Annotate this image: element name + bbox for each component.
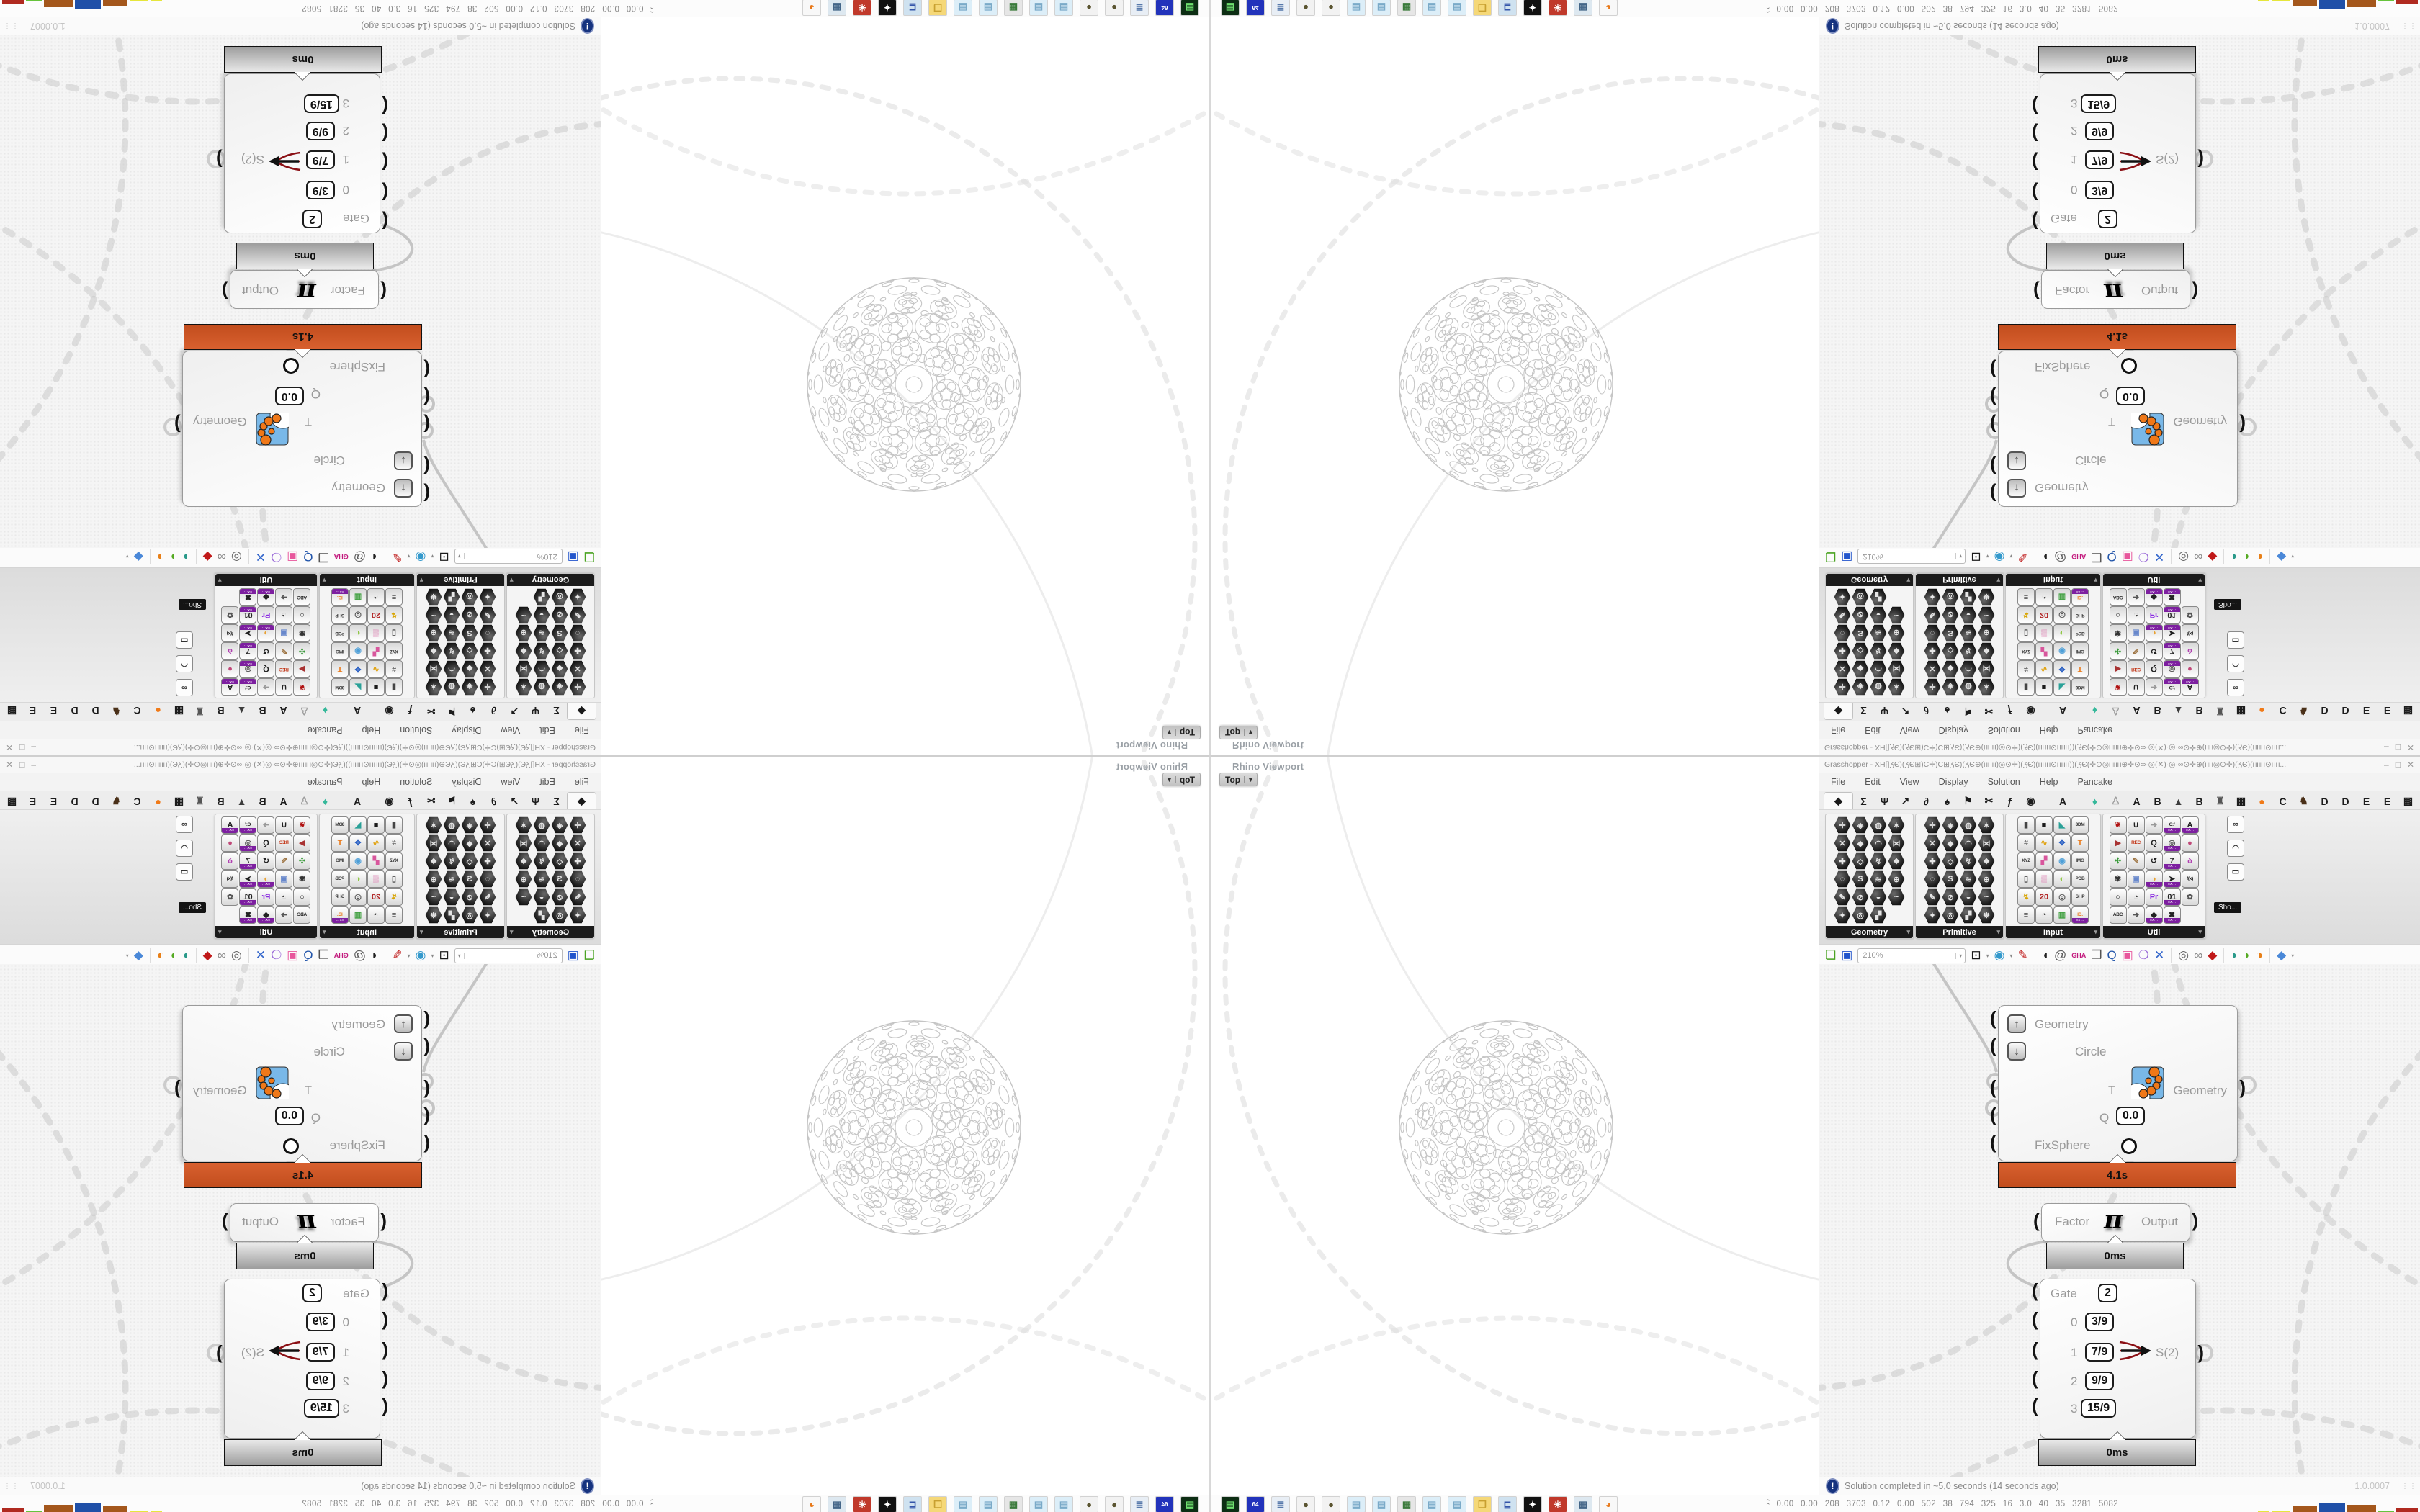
maximize-button[interactable]: □ xyxy=(2396,760,2401,769)
input-connector[interactable]: ( xyxy=(382,215,388,228)
component-icon[interactable]: ◒ xyxy=(1960,888,1977,906)
component-icon[interactable]: ◇ xyxy=(551,852,568,870)
category-tab[interactable]: ▲ xyxy=(231,703,252,719)
component-icon[interactable]: A≡x… xyxy=(222,816,239,834)
component-icon[interactable]: ∞ xyxy=(2227,816,2244,833)
promote-up-button[interactable]: ↑ xyxy=(2007,1014,2026,1033)
component-icon[interactable]: ➤≡x… xyxy=(2164,624,2181,642)
component-icon[interactable]: ✚ xyxy=(569,642,586,660)
component-icon[interactable]: ◐ xyxy=(349,624,367,642)
component-icon[interactable]: ◍ xyxy=(443,816,460,834)
component-icon[interactable]: ✎ xyxy=(569,606,586,624)
taskbar-app-icon[interactable]: ⊑ xyxy=(1498,0,1517,17)
taskbar-app-icon[interactable]: ▤ xyxy=(1029,1496,1048,1512)
output-connector[interactable]: ) xyxy=(222,1214,228,1227)
category-tab[interactable]: ƒ xyxy=(400,703,421,719)
chevron-down-icon[interactable]: ▼ xyxy=(1166,776,1176,783)
component-icon[interactable]: XYZ xyxy=(2017,642,2035,660)
component-icon[interactable]: ∞ xyxy=(176,816,193,833)
finder-icon[interactable]: Q xyxy=(303,948,313,963)
component-icon[interactable]: ↯ xyxy=(2017,606,2035,624)
component-icon[interactable]: ○ xyxy=(294,888,311,906)
category-tab[interactable]: D xyxy=(2335,793,2356,809)
component-icon[interactable]: ◐ xyxy=(349,870,367,888)
component-icon[interactable]: REC xyxy=(276,834,293,852)
category-tab[interactable]: ◆ xyxy=(1824,703,1853,720)
input-connector[interactable]: ( xyxy=(1990,460,1996,473)
component-icon[interactable]: XYZ xyxy=(2017,852,2035,870)
component-icon[interactable]: ❉ xyxy=(425,588,442,606)
preview-eye-icon[interactable]: ◉ xyxy=(416,948,426,963)
component-icon[interactable]: ✎ xyxy=(1924,606,1941,624)
palette-group-label[interactable]: Primitive▾ xyxy=(1916,926,2003,938)
chevron-down-icon[interactable]: ▾ xyxy=(126,554,129,560)
component-icon[interactable]: ⋈ xyxy=(425,660,442,678)
gh-canvas[interactable]: ( ( ( ( ( ) ↑ Geometry ↓ Circle T xyxy=(0,964,601,1477)
input-connector[interactable]: ( xyxy=(382,1313,388,1326)
component-icon[interactable]: REC xyxy=(2128,660,2145,678)
component-icon[interactable]: f(x) xyxy=(2182,624,2199,642)
rhino-viewport[interactable]: Rhino Viewport Top ▼ xyxy=(601,17,1209,755)
component-icon[interactable]: ∿ xyxy=(2035,660,2053,678)
taskbar-app-icon[interactable]: ✦ xyxy=(878,0,897,17)
chevron-down-icon[interactable]: ▼ xyxy=(1244,729,1254,737)
component-icon[interactable]: ↯ xyxy=(385,606,403,624)
category-tab[interactable]: ∂ xyxy=(1916,793,1937,809)
component-icon[interactable]: ▥ xyxy=(2053,588,2071,606)
gem-icon[interactable]: ◆ xyxy=(2208,549,2217,564)
at-badge-icon[interactable]: @ xyxy=(2054,549,2066,564)
menu-item-pancake[interactable]: Pancake xyxy=(308,777,343,787)
input-connector[interactable]: ( xyxy=(2032,1372,2038,1385)
chevron-down-icon[interactable]: ▾ xyxy=(218,576,222,584)
component-icon[interactable]: S xyxy=(1852,624,1869,642)
frame-extents-icon[interactable]: ⊡ xyxy=(439,948,449,963)
promote-up-button[interactable]: ↑ xyxy=(394,479,413,498)
component-icon[interactable]: IMG xyxy=(2071,852,2089,870)
component-icon[interactable]: ↯ xyxy=(533,852,550,870)
zoom-level-field[interactable]: 210%▾ xyxy=(454,948,563,963)
component-icon[interactable]: ≡ xyxy=(2017,906,2035,924)
titlebar[interactable]: Grasshopper - XH[]ƷЄ)(ƷЄ⊞)C✛)C⊞ƷЄ)(ƷЄ⊕(ʜ… xyxy=(0,757,601,773)
component-icon[interactable]: ✾ xyxy=(294,624,311,642)
component-icon[interactable]: ✚ xyxy=(1924,642,1941,660)
category-tab[interactable]: ◆ xyxy=(1824,792,1853,809)
category-tab[interactable]: A xyxy=(2041,703,2084,719)
open-file-icon[interactable]: ❏ xyxy=(584,549,595,564)
component-icon[interactable]: A≡x… xyxy=(222,678,239,696)
component-icon[interactable]: ✚ xyxy=(479,642,496,660)
component-icon[interactable]: ↯ xyxy=(1960,852,1977,870)
component-icon[interactable]: ▮ xyxy=(385,678,403,696)
component-icon[interactable]: ✕ xyxy=(1924,834,1941,852)
megaphone-icon[interactable]: ◖ xyxy=(371,948,378,963)
component-icon[interactable]: ➔ xyxy=(276,588,293,606)
category-tab[interactable]: ▲ xyxy=(2168,703,2189,719)
taskbar-app-icon[interactable]: ◕ xyxy=(1599,1496,1618,1512)
chevron-down-icon[interactable]: ▾ xyxy=(408,953,411,959)
component-icon[interactable]: REC xyxy=(276,660,293,678)
component-icon[interactable]: ~ xyxy=(515,606,532,624)
component-icon[interactable]: ✕ xyxy=(1834,660,1851,678)
package-icon[interactable]: ▣ xyxy=(287,549,298,564)
titlebar[interactable]: Grasshopper - XH[]ƷЄ)(ƷЄ⊞)C✛)C⊞ƷЄ)(ƷЄ⊕(ʜ… xyxy=(1819,739,2420,755)
finder-icon[interactable]: Q xyxy=(2107,549,2116,564)
output-connector[interactable]: ) xyxy=(2192,1214,2198,1227)
category-tab[interactable]: ƒ xyxy=(1999,703,2020,719)
rings-icon[interactable]: ∞ xyxy=(2194,549,2202,564)
component-icon[interactable]: ✦ xyxy=(569,588,586,606)
component-icon[interactable]: ✿ xyxy=(2182,888,2199,906)
component-icon[interactable]: ↯ xyxy=(2017,888,2035,906)
package-icon[interactable]: ▣ xyxy=(287,948,298,963)
taskbar-app-icon[interactable]: ▤ xyxy=(1448,1496,1466,1512)
taskbar-app-icon[interactable]: 64 xyxy=(1246,1496,1265,1512)
component-icon[interactable]: ➤≡x… xyxy=(2164,870,2181,888)
component-icon[interactable]: 3DM xyxy=(331,816,349,834)
input-connector[interactable]: ( xyxy=(382,186,388,199)
input-connector[interactable]: ( xyxy=(382,1399,388,1412)
node-stream-gate[interactable]: ( ( ( ( ( ) Gate 2 0 3/9 1 7/9 xyxy=(2040,1279,2196,1439)
balloon-icon[interactable]: ❍ xyxy=(2138,948,2149,963)
component-icon[interactable]: ⊘ xyxy=(551,888,568,906)
component-icon[interactable]: ✎ xyxy=(479,606,496,624)
component-icon[interactable]: ◌ xyxy=(1834,870,1851,888)
at-badge-icon[interactable]: @ xyxy=(2054,948,2066,963)
viewport-tab-top[interactable]: Top ▼ xyxy=(1219,726,1258,739)
component-icon[interactable]: ✛ xyxy=(479,816,496,834)
component-icon[interactable]: ✶ xyxy=(1888,678,1905,696)
component-icon[interactable]: ≋ xyxy=(533,870,550,888)
palette-group-label[interactable]: Util▾ xyxy=(2103,574,2205,586)
menu-item-solution[interactable]: Solution xyxy=(1988,725,2020,735)
component-icon[interactable]: S xyxy=(1852,870,1869,888)
component-icon[interactable]: ✶ xyxy=(425,816,442,834)
component-icon[interactable]: 3DM xyxy=(2071,816,2089,834)
component-icon[interactable]: ▞ xyxy=(443,588,460,606)
component-icon[interactable]: ≋ xyxy=(443,624,460,642)
component-icon[interactable]: ▞ xyxy=(533,588,550,606)
component-icon[interactable]: ≡ xyxy=(385,588,403,606)
rhino-viewport[interactable]: Rhino Viewport Top ▼ xyxy=(601,757,1209,1495)
gha-badge-icon[interactable]: GHA xyxy=(334,549,349,564)
taskbar-app-icon[interactable]: ▤ xyxy=(954,1496,972,1512)
input-connector[interactable]: ( xyxy=(2032,1343,2038,1356)
component-icon[interactable]: ◎ xyxy=(1942,588,1959,606)
component-icon[interactable]: ◆ xyxy=(1852,834,1869,852)
rings-icon[interactable]: ∞ xyxy=(218,948,226,963)
component-icon[interactable]: ✚ xyxy=(479,852,496,870)
component-icon[interactable]: ABC xyxy=(2110,906,2127,924)
preview-eye-icon[interactable]: ◉ xyxy=(416,549,426,564)
viewport-tab-top[interactable]: Top ▼ xyxy=(1162,726,1201,739)
component-icon[interactable]: ◌ xyxy=(569,624,586,642)
chevron-down-icon[interactable]: ▾ xyxy=(455,953,465,959)
package-icon[interactable]: ▣ xyxy=(2122,948,2133,963)
chevron-down-icon[interactable]: ▾ xyxy=(323,928,326,936)
input-connector[interactable]: ( xyxy=(1990,1108,1996,1121)
menu-item-edit[interactable]: Edit xyxy=(539,777,555,787)
fixsphere-radio[interactable] xyxy=(283,358,299,374)
close-button[interactable]: ✕ xyxy=(6,743,13,752)
input-connector[interactable]: ( xyxy=(2033,285,2040,298)
taskbar-app-icon[interactable]: ▤ xyxy=(979,1496,998,1512)
promote-up-button[interactable]: ↑ xyxy=(2007,479,2026,498)
component-icon[interactable]: ⋈ xyxy=(1888,834,1905,852)
category-tab[interactable]: D xyxy=(64,793,85,809)
component-icon[interactable]: ◣ xyxy=(2053,816,2071,834)
component-icon[interactable]: ◐ xyxy=(2053,870,2071,888)
component-icon[interactable]: ◈ xyxy=(1852,816,1869,834)
palette-group-label[interactable]: Primitive▾ xyxy=(417,926,504,938)
component-icon[interactable]: 01≡x… xyxy=(2164,888,2181,906)
component-icon[interactable]: ■ xyxy=(2035,678,2053,696)
sketch-quill-icon[interactable]: ✎ xyxy=(392,948,402,963)
component-icon[interactable]: ◎ xyxy=(349,888,367,906)
node-fixsphere[interactable]: ( ( ( ( ( ) ↑ Geometry ↓ Circle T xyxy=(1998,1005,2238,1161)
component-icon[interactable]: ◎ xyxy=(2053,888,2071,906)
component-icon[interactable]: ◒ xyxy=(1960,606,1977,624)
category-tab[interactable]: ♙ xyxy=(294,703,315,719)
component-icon[interactable]: C:/≡x… xyxy=(2164,678,2181,696)
component-icon[interactable]: ≋ xyxy=(1870,870,1887,888)
taskbar-app-icon[interactable]: ❒ xyxy=(1473,1496,1492,1512)
component-icon[interactable]: ➤≡x… xyxy=(240,870,257,888)
component-icon[interactable]: ✦ xyxy=(479,906,496,924)
output-connector[interactable]: ) xyxy=(216,1346,223,1359)
value-box[interactable]: 2 xyxy=(2098,1284,2117,1302)
category-tab[interactable]: B xyxy=(252,703,273,719)
taskbar-app-icon[interactable]: 64 xyxy=(1155,0,1174,17)
category-tab[interactable]: ↗ xyxy=(504,703,525,719)
component-icon[interactable]: ◈ xyxy=(461,816,478,834)
taskbar-app-icon[interactable]: ▤ xyxy=(1422,1496,1441,1512)
cluster-icon[interactable]: ◎ xyxy=(231,948,242,963)
open-file-icon[interactable]: ❏ xyxy=(1825,549,1836,564)
input-connector[interactable]: ( xyxy=(382,127,388,140)
component-icon[interactable]: ▯ xyxy=(2017,624,2035,642)
component-icon[interactable]: S xyxy=(551,870,568,888)
component-icon[interactable]: δ xyxy=(2182,852,2199,870)
teal-blob-icon[interactable]: ◗ xyxy=(181,948,189,963)
component-icon[interactable]: ➔ xyxy=(2146,678,2163,696)
component-icon[interactable]: XYZ xyxy=(385,852,403,870)
component-icon[interactable]: ◠ xyxy=(1960,660,1977,678)
component-icon[interactable]: ∞ xyxy=(176,679,193,696)
component-icon[interactable]: ∪ xyxy=(276,816,293,834)
component-icon[interactable]: ❦ xyxy=(294,816,311,834)
output-connector[interactable]: ) xyxy=(174,1081,181,1094)
component-icon[interactable]: ✛ xyxy=(479,678,496,696)
component-icon[interactable]: IMG xyxy=(331,642,349,660)
node-fixsphere[interactable]: ( ( ( ( ( ) ↑ Geometry ↓ Circle T xyxy=(1998,351,2238,507)
value-box[interactable]: 7/9 xyxy=(2085,1343,2114,1362)
component-icon[interactable]: 7≡x… xyxy=(2164,642,2181,660)
taskbar-app-icon[interactable]: ▤ xyxy=(1372,1496,1391,1512)
taskbar-app-icon[interactable]: ✦ xyxy=(1523,0,1542,17)
preview-eye-icon[interactable]: ◉ xyxy=(1994,948,2005,963)
menu-item-help[interactable]: Help xyxy=(362,725,381,735)
orange-ball-icon[interactable]: ◑ xyxy=(157,549,164,564)
chevron-down-icon[interactable]: ▾ xyxy=(2094,928,2097,936)
category-tab[interactable]: E xyxy=(2377,703,2398,719)
category-tab[interactable]: ♞ xyxy=(2293,793,2314,809)
component-icon[interactable]: ◆≡x… xyxy=(258,906,275,924)
taskbar-app-icon[interactable]: 64 xyxy=(1246,0,1265,17)
category-tab[interactable]: C xyxy=(127,793,148,809)
category-tab[interactable]: ● xyxy=(2251,703,2272,719)
cluster-icon[interactable]: ◎ xyxy=(231,549,242,564)
category-tab[interactable]: Ψ xyxy=(525,793,546,809)
component-icon[interactable]: ▶ xyxy=(294,660,311,678)
component-icon[interactable]: ◔ xyxy=(2128,606,2145,624)
component-icon[interactable]: ◔ xyxy=(2035,588,2053,606)
palette-group-label[interactable]: Primitive▾ xyxy=(1916,574,2003,586)
category-tab[interactable]: ✂ xyxy=(1978,793,1999,809)
component-icon[interactable]: ▞ xyxy=(533,906,550,924)
finder-icon[interactable]: Q xyxy=(303,549,313,564)
component-icon[interactable]: C:/≡x… xyxy=(240,816,257,834)
titlebar[interactable]: Grasshopper - XH[]ƷЄ)(ƷЄ⊞)C✛)C⊞ƷЄ)(ƷЄ⊕(ʜ… xyxy=(1819,757,2420,773)
component-icon[interactable]: ◠ xyxy=(1960,834,1977,852)
component-icon[interactable]: ✶ xyxy=(515,678,532,696)
component-icon[interactable]: ❦ xyxy=(2110,816,2127,834)
component-icon[interactable]: PDB xyxy=(2071,624,2089,642)
component-icon[interactable]: ✛ xyxy=(569,816,586,834)
gem-icon[interactable]: ◆ xyxy=(2208,948,2217,963)
output-connector[interactable]: ) xyxy=(2197,153,2204,166)
component-icon[interactable]: ➔ xyxy=(2146,816,2163,834)
chevron-down-icon[interactable]: ▼ xyxy=(1244,776,1254,783)
component-icon[interactable]: ◆ xyxy=(1942,660,1959,678)
menu-item-view[interactable]: View xyxy=(501,777,520,787)
chevron-down-icon[interactable]: ▾ xyxy=(2009,953,2012,959)
input-connector[interactable]: ( xyxy=(1990,487,1996,500)
input-connector[interactable]: ( xyxy=(423,364,430,377)
category-tab[interactable]: D xyxy=(2314,703,2335,719)
rhino-viewport[interactable]: Rhino Viewport Top ▼ xyxy=(1211,17,1819,755)
value-box[interactable]: 15/9 xyxy=(2081,94,2116,113)
component-icon[interactable]: ✖≡x… xyxy=(240,588,257,606)
taskbar-app-icon[interactable]: ❒ xyxy=(1473,0,1492,17)
component-icon[interactable]: ▭ xyxy=(176,863,193,881)
component-icon[interactable]: ▞ xyxy=(1960,588,1977,606)
input-connector[interactable]: ( xyxy=(2032,215,2038,228)
fixsphere-radio[interactable] xyxy=(2121,1138,2137,1154)
rings-icon[interactable]: ∞ xyxy=(218,549,226,564)
input-connector[interactable]: ( xyxy=(423,1081,430,1094)
input-connector[interactable]: ( xyxy=(382,1284,388,1297)
value-box[interactable]: 7/9 xyxy=(2085,150,2114,169)
balloon-icon[interactable]: ❍ xyxy=(271,549,282,564)
category-tab[interactable]: ✂ xyxy=(1978,703,1999,719)
category-tab[interactable]: ♜ xyxy=(2210,703,2231,719)
category-tab[interactable]: Σ xyxy=(546,793,567,809)
component-icon[interactable]: ✶ xyxy=(515,816,532,834)
category-tab[interactable]: ▦ xyxy=(169,703,189,719)
gha-badge-icon[interactable]: GHA xyxy=(334,948,349,963)
input-connector[interactable]: ( xyxy=(382,100,388,113)
component-icon[interactable]: 01≡x… xyxy=(240,888,257,906)
component-icon[interactable]: PDB xyxy=(331,870,349,888)
category-tab[interactable]: ▩ xyxy=(1,793,22,809)
chevron-down-icon[interactable]: ▼ xyxy=(1166,729,1176,737)
component-icon[interactable]: SHP xyxy=(331,606,349,624)
component-icon[interactable]: ∪ xyxy=(2128,678,2145,696)
component-icon[interactable]: ◇ xyxy=(1942,642,1959,660)
menu-item-pancake[interactable]: Pancake xyxy=(2077,725,2112,735)
taskbar-app-icon[interactable]: ▤ xyxy=(1180,0,1199,17)
maximize-button[interactable]: □ xyxy=(19,760,24,769)
category-tab[interactable]: Σ xyxy=(1853,703,1874,719)
category-tab[interactable]: ♦ xyxy=(315,703,336,719)
value-box[interactable]: 3/9 xyxy=(306,1313,335,1331)
component-icon[interactable]: ✾ xyxy=(294,870,311,888)
frame-extents-icon[interactable]: ⊡ xyxy=(1971,948,1981,963)
category-tab[interactable]: Σ xyxy=(546,703,567,719)
chevron-down-icon[interactable]: ▾ xyxy=(420,928,423,936)
category-tab[interactable]: A xyxy=(2126,793,2147,809)
value-box[interactable]: 3/9 xyxy=(306,181,335,199)
component-icon[interactable]: ✣ xyxy=(294,642,311,660)
category-tab[interactable]: B xyxy=(252,793,273,809)
taskbar-app-icon[interactable]: ▤ xyxy=(1180,1496,1199,1512)
component-icon[interactable]: PDB xyxy=(331,624,349,642)
category-tab[interactable]: ✂ xyxy=(421,703,442,719)
gem-icon[interactable]: ◆ xyxy=(203,549,212,564)
category-tab[interactable]: ● xyxy=(148,793,169,809)
component-icon[interactable]: ◐ xyxy=(2053,624,2071,642)
chevron-down-icon[interactable]: ▾ xyxy=(455,554,465,560)
component-icon[interactable]: ✣ xyxy=(2110,642,2127,660)
menu-item-display[interactable]: Display xyxy=(1939,725,1968,735)
palette-group-label[interactable]: Input▾ xyxy=(2006,926,2100,938)
component-icon[interactable]: ABC xyxy=(294,906,311,924)
component-icon[interactable]: ◈ xyxy=(1942,816,1959,834)
component-icon[interactable]: ⊕ xyxy=(425,624,442,642)
at-badge-icon[interactable]: @ xyxy=(354,948,366,963)
palette-group-label[interactable]: Input▾ xyxy=(320,574,414,586)
component-icon[interactable]: ✦ xyxy=(1834,906,1851,924)
chevron-down-icon[interactable]: ▾ xyxy=(431,953,434,959)
category-tab[interactable]: ◆ xyxy=(567,792,596,809)
category-tab[interactable]: ƒ xyxy=(400,793,421,809)
component-icon[interactable]: ◉ xyxy=(349,642,367,660)
component-icon[interactable]: T xyxy=(2071,834,2089,852)
category-tab[interactable]: ↗ xyxy=(1895,703,1916,719)
taskbar-app-icon[interactable]: ✦ xyxy=(878,1496,897,1512)
component-icon[interactable]: ◠ xyxy=(533,660,550,678)
component-icon[interactable]: SHP xyxy=(331,888,349,906)
output-connector[interactable]: ) xyxy=(2239,418,2246,431)
component-icon[interactable]: ✿ xyxy=(222,888,239,906)
menu-item-view[interactable]: View xyxy=(501,725,520,735)
open-file-icon[interactable]: ❏ xyxy=(1825,948,1836,963)
output-connector[interactable]: ) xyxy=(174,418,181,431)
component-icon[interactable]: ⊘ xyxy=(461,606,478,624)
taskbar-app-icon[interactable]: ▤ xyxy=(954,0,972,17)
component-icon[interactable]: ✶ xyxy=(1978,816,1995,834)
component-icon[interactable]: ◠ xyxy=(176,840,193,857)
promote-up-button[interactable]: ↑ xyxy=(394,1014,413,1033)
value-box[interactable]: 15/9 xyxy=(2081,1399,2116,1418)
minimize-button[interactable]: – xyxy=(2384,760,2389,769)
component-icon[interactable]: 20 xyxy=(367,888,385,906)
category-tab[interactable]: D xyxy=(2314,793,2335,809)
zoom-level-field[interactable]: 210%▾ xyxy=(1857,948,1966,963)
input-connector[interactable]: ( xyxy=(2032,127,2038,140)
component-icon[interactable]: ✶ xyxy=(1888,816,1905,834)
